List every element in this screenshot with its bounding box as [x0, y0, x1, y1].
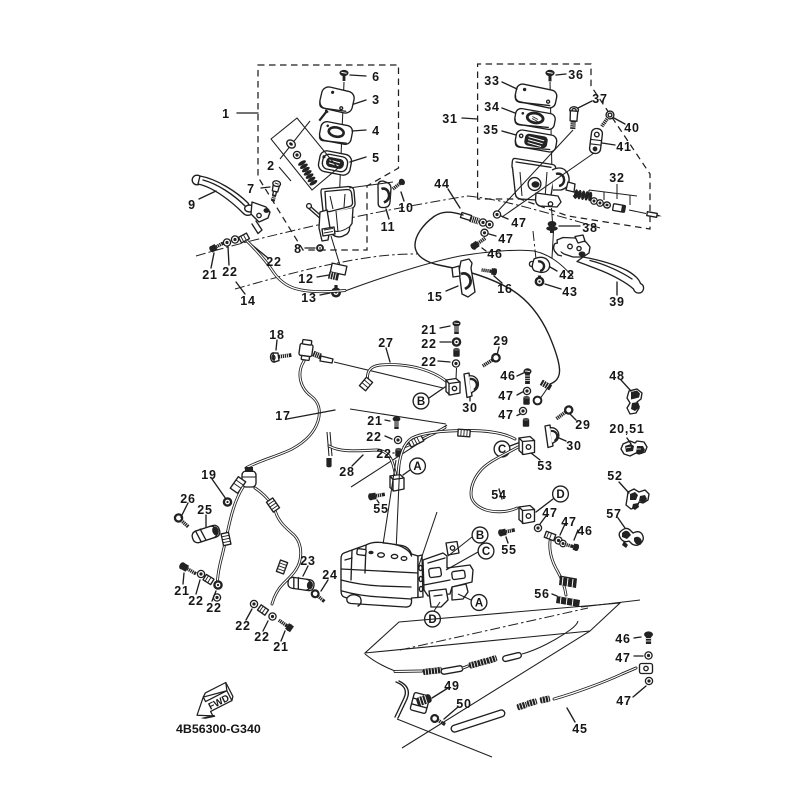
svg-text:33: 33 [484, 74, 500, 88]
svg-text:16: 16 [497, 282, 513, 296]
svg-text:53: 53 [537, 459, 553, 473]
svg-text:38: 38 [582, 221, 598, 235]
svg-text:8: 8 [294, 242, 302, 256]
svg-text:22: 22 [206, 601, 222, 615]
svg-text:22: 22 [366, 430, 382, 444]
svg-text:55: 55 [501, 543, 517, 557]
svg-text:19: 19 [201, 468, 217, 482]
svg-text:30: 30 [462, 401, 478, 415]
svg-text:15: 15 [427, 290, 443, 304]
svg-text:22: 22 [254, 630, 270, 644]
svg-text:C: C [482, 546, 490, 558]
svg-text:1: 1 [222, 107, 230, 121]
svg-text:21: 21 [421, 323, 437, 337]
svg-text:3: 3 [372, 93, 380, 107]
svg-text:26: 26 [180, 492, 196, 506]
svg-text:22: 22 [266, 255, 282, 269]
svg-text:54: 54 [491, 488, 507, 502]
svg-text:A: A [413, 461, 421, 473]
svg-text:39: 39 [609, 295, 625, 309]
svg-text:47: 47 [498, 232, 514, 246]
svg-text:25: 25 [197, 503, 213, 517]
svg-text:47: 47 [498, 389, 514, 403]
svg-text:37: 37 [592, 92, 608, 106]
svg-text:23: 23 [300, 554, 316, 568]
svg-text:47: 47 [498, 408, 514, 422]
svg-text:2: 2 [267, 159, 275, 173]
svg-text:29: 29 [575, 418, 591, 432]
svg-text:46: 46 [577, 524, 593, 538]
svg-text:10: 10 [398, 201, 414, 215]
svg-text:B: B [476, 530, 484, 542]
svg-text:29: 29 [493, 334, 509, 348]
svg-text:31: 31 [442, 112, 458, 126]
svg-text:9: 9 [188, 198, 196, 212]
svg-text:D: D [556, 489, 564, 501]
svg-text:22: 22 [421, 337, 437, 351]
svg-text:A: A [475, 598, 483, 610]
svg-text:21: 21 [202, 268, 218, 282]
svg-text:36: 36 [568, 68, 584, 82]
svg-text:46: 46 [487, 247, 503, 261]
svg-text:D: D [428, 614, 436, 626]
svg-text:44: 44 [434, 177, 450, 191]
svg-text:22: 22 [376, 447, 392, 461]
svg-text:21: 21 [273, 640, 289, 654]
svg-text:45: 45 [572, 722, 588, 736]
svg-text:4: 4 [372, 124, 380, 138]
svg-text:22: 22 [235, 619, 251, 633]
svg-text:34: 34 [484, 100, 500, 114]
svg-text:22: 22 [222, 265, 238, 279]
svg-text:5: 5 [372, 151, 380, 165]
svg-text:49: 49 [444, 679, 460, 693]
svg-text:32: 32 [609, 171, 625, 185]
svg-text:40: 40 [624, 121, 640, 135]
svg-text:50: 50 [456, 697, 472, 711]
svg-text:22: 22 [188, 594, 204, 608]
svg-text:47: 47 [561, 515, 577, 529]
svg-text:47: 47 [615, 651, 631, 665]
svg-text:7: 7 [247, 182, 255, 196]
svg-text:4B56300-G340: 4B56300-G340 [176, 722, 261, 736]
svg-text:22: 22 [421, 355, 437, 369]
svg-text:46: 46 [615, 632, 631, 646]
svg-text:18: 18 [269, 328, 285, 342]
svg-text:41: 41 [616, 140, 632, 154]
svg-text:56: 56 [534, 587, 550, 601]
svg-text:52: 52 [607, 469, 623, 483]
svg-text:28: 28 [339, 465, 355, 479]
svg-text:B: B [417, 396, 425, 408]
svg-text:21: 21 [367, 414, 383, 428]
svg-text:11: 11 [381, 220, 396, 234]
svg-text:47: 47 [511, 216, 527, 230]
svg-text:46: 46 [500, 369, 516, 383]
svg-text:6: 6 [372, 70, 380, 84]
svg-text:27: 27 [378, 336, 394, 350]
svg-text:13: 13 [301, 291, 317, 305]
svg-text:24: 24 [322, 568, 338, 582]
svg-text:43: 43 [562, 285, 578, 299]
svg-text:42: 42 [559, 268, 575, 282]
svg-text:17: 17 [275, 409, 291, 423]
svg-text:47: 47 [616, 694, 632, 708]
svg-text:20,51: 20,51 [609, 422, 644, 436]
svg-text:35: 35 [483, 123, 499, 137]
svg-text:12: 12 [298, 272, 314, 286]
svg-text:14: 14 [240, 294, 256, 308]
svg-text:55: 55 [373, 502, 389, 516]
svg-text:30: 30 [566, 439, 582, 453]
svg-text:47: 47 [542, 506, 558, 520]
